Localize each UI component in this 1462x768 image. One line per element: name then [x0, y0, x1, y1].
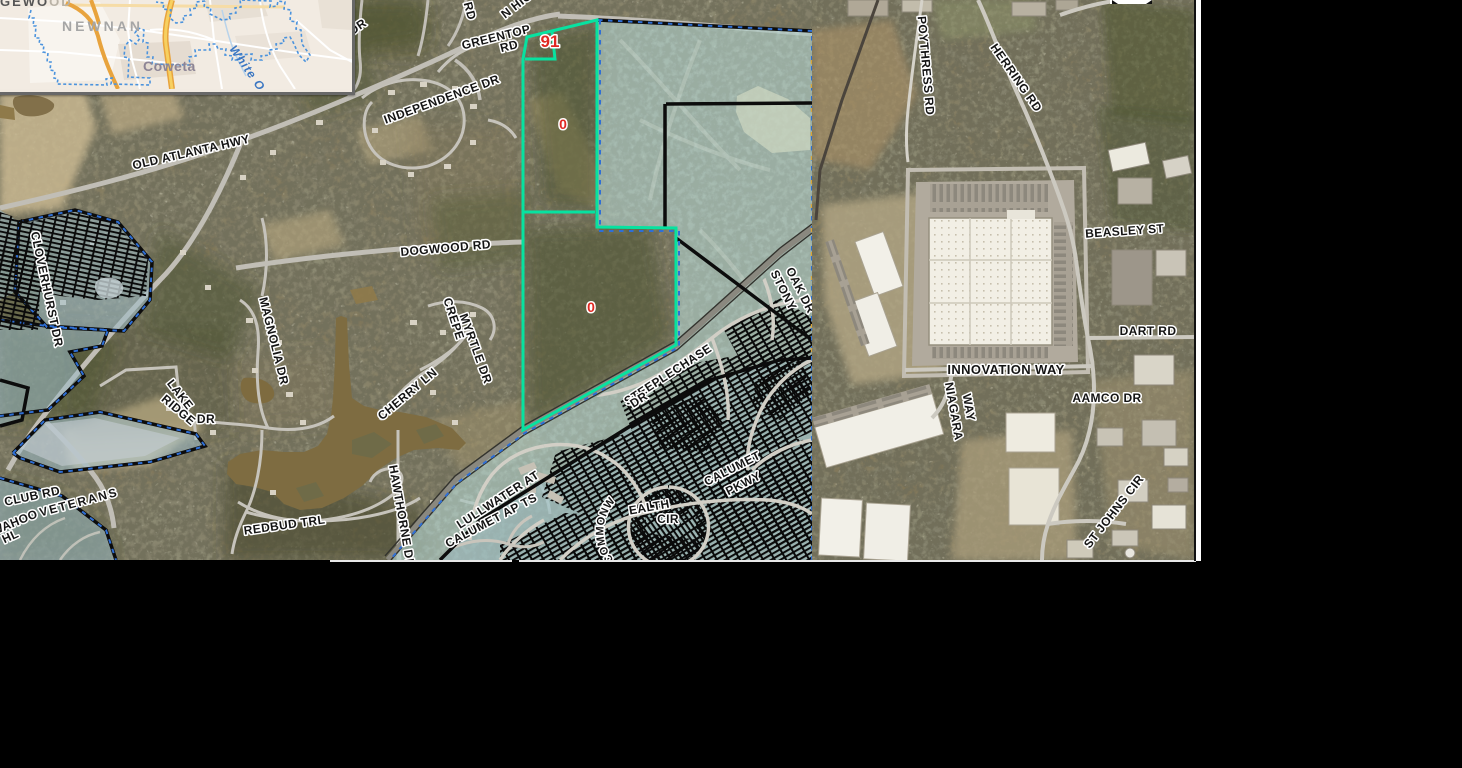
svg-text:Coweta: Coweta: [143, 58, 196, 74]
svg-text:DART RD: DART RD: [1120, 324, 1177, 338]
svg-text:AAMCO DR: AAMCO DR: [1072, 391, 1141, 405]
svg-text:91: 91: [541, 32, 560, 51]
svg-text:INNOVATION WAY: INNOVATION WAY: [947, 362, 1064, 377]
svg-text:NEWNAN: NEWNAN: [62, 18, 143, 34]
svg-text:DR: DR: [197, 412, 215, 426]
svg-text:GEWOOD: GEWOOD: [0, 0, 73, 9]
svg-text:0: 0: [587, 299, 595, 315]
svg-text:0: 0: [559, 116, 567, 132]
svg-text:CIR: CIR: [657, 512, 679, 526]
